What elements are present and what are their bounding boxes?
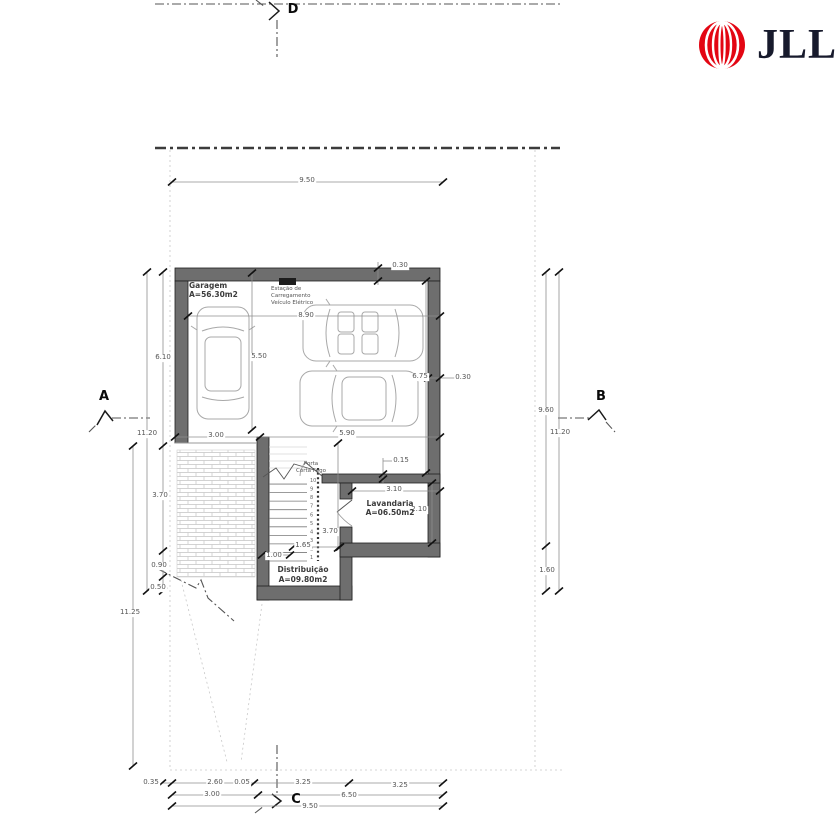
dim-b8: 9.50: [301, 803, 319, 811]
stairs-upper-flight: [269, 447, 307, 468]
dim-garage-height-left: 6.10: [154, 354, 172, 362]
jll-logo-text: JLL: [757, 24, 837, 66]
room-area-lavandaria: A=06.50m2: [365, 509, 416, 517]
section-marker-a: A: [98, 390, 110, 404]
ev-label-line1: Estação de: [271, 286, 301, 292]
stair-step-number: 1: [310, 555, 313, 561]
stair-step-number: 7: [310, 504, 313, 510]
dim-lav-width: 3.10: [385, 486, 403, 494]
paved-apron-hatch: [158, 450, 262, 762]
stair-step-number: 8: [310, 495, 313, 501]
car-icon-top-right: [303, 299, 423, 367]
dim-b6: 3.00: [203, 791, 221, 799]
room-label-distribuicao: Distribuição: [276, 566, 329, 574]
ev-label-line3: Veículo Elétrico: [271, 300, 313, 306]
dim-garage-height-right: 6.75: [411, 373, 429, 381]
floorplan-page: 12345678910: [0, 0, 840, 815]
dim-b2: 2.60: [206, 779, 224, 787]
dim-b3: 0.05: [233, 779, 251, 787]
car-icon-left: [191, 307, 255, 419]
dim-right-wall: 0.30: [454, 374, 472, 382]
dim-left-outer: 11.25: [119, 609, 141, 617]
section-marker-c: C: [290, 793, 302, 807]
floorplan-drawing: 12345678910: [0, 0, 840, 815]
dim-b4: 3.25: [294, 779, 312, 787]
room-area-garagem: A=56.30m2: [189, 291, 238, 299]
stair-step-number: 9: [310, 487, 313, 493]
dim-left-s2: 0.50: [149, 584, 167, 592]
car-icon-bottom-right: [300, 365, 418, 432]
dim-left-s1: 0.90: [150, 562, 168, 570]
fire-door-label-line1: Porta: [303, 461, 319, 467]
property-boundary-lines: [155, 4, 562, 770]
dim-stair-width: 1.00: [265, 552, 283, 560]
dim-left-total: 11.20: [136, 430, 158, 438]
dim-stair-height: 3.70: [321, 528, 339, 536]
laundry-door: [337, 500, 352, 526]
section-marker-lines: [89, 0, 615, 813]
dim-right-lower: 1.60: [538, 567, 556, 575]
room-label-lavandaria: Lavandaria: [366, 500, 415, 508]
dim-right-upper: 9.60: [537, 407, 555, 415]
dim-right-total: 11.20: [549, 429, 571, 437]
section-marker-d: D: [287, 3, 300, 17]
dim-left-lower: 3.70: [151, 492, 169, 500]
ev-charger-icon: [279, 278, 296, 285]
jll-logo: JLL: [694, 16, 837, 74]
dim-garage-width: 8.90: [297, 312, 315, 320]
room-label-garagem: Garagem: [189, 282, 227, 290]
dim-b7: 6.50: [340, 792, 358, 800]
dim-car-bay: 5.50: [250, 353, 268, 361]
dim-stair-run: 1.65: [294, 542, 312, 550]
stair-step-number: 4: [310, 529, 313, 535]
dim-top-wall: 0.30: [391, 262, 409, 270]
fire-door-label-line2: Corta Fogo: [295, 468, 327, 474]
section-marker-b: B: [595, 390, 607, 404]
stair-step-number: 10: [310, 478, 316, 484]
dim-door-width: 3.00: [207, 432, 225, 440]
dim-b5: 3.25: [391, 782, 409, 790]
dim-garage-bottom: 5.90: [338, 430, 356, 438]
dim-lav-wall: 0.15: [392, 457, 410, 465]
jll-sphere-icon: [694, 16, 750, 74]
room-area-distribuicao: A=09.80m2: [278, 576, 329, 584]
stair-step-number: 6: [310, 512, 313, 518]
ev-label-line2: Carregamento: [271, 293, 311, 299]
dim-top-width: 9.50: [298, 177, 316, 185]
dim-b1: 0.35: [142, 779, 160, 787]
stair-step-number: 5: [310, 521, 313, 527]
